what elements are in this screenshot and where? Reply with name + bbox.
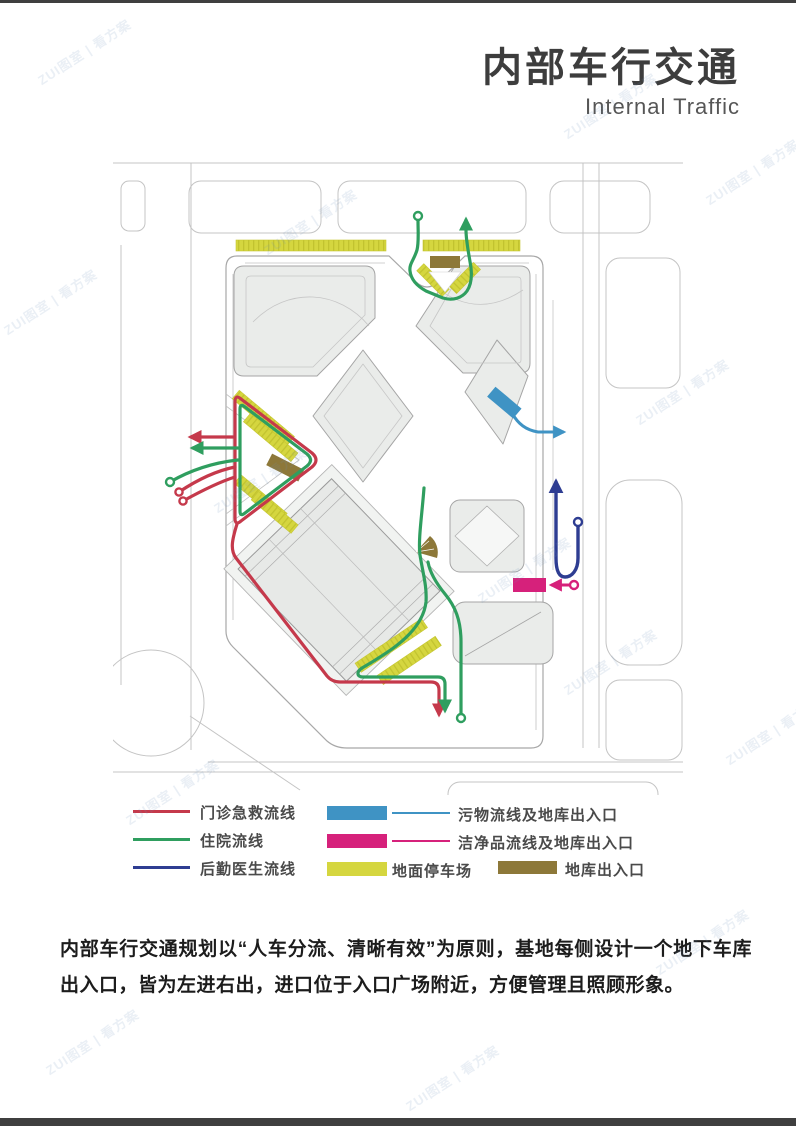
watermark: ZUI图室 | 看方案 <box>0 264 100 339</box>
flow-logistics-navy <box>556 482 578 577</box>
legend-label-inpatient: 住院流线 <box>200 830 264 851</box>
legend-label-waste: 污物流线及地库出入口 <box>458 804 618 825</box>
site-plan-svg <box>113 150 683 795</box>
legend-swatch-logistics-line <box>133 866 190 869</box>
site-plan-map <box>113 150 683 795</box>
clean-flow-start-node <box>570 581 578 589</box>
top-edge-bar <box>0 0 796 3</box>
flow-clean-magenta <box>513 578 578 592</box>
legend-swatch-parking-rect <box>327 862 387 876</box>
watermark: ZUI图室 | 看方案 <box>702 134 796 209</box>
legend-label-parking: 地面停车场 <box>392 860 472 881</box>
description-paragraph: 内部车行交通规划以“人车分流、清晰有效”为原则，基地每侧设计一个地下车库出入口，… <box>60 932 752 1004</box>
watermark: ZUI图室 | 看方案 <box>402 1040 503 1115</box>
legend-label-logistics: 后勤医生流线 <box>200 858 296 879</box>
legend-swatch-clean-line <box>392 840 450 842</box>
clean-garage-ramp <box>513 578 546 592</box>
legend-label-clean: 洁净品流线及地库出入口 <box>458 832 634 853</box>
legend-swatch-waste-line <box>392 812 450 814</box>
page-title-block: 内部车行交通 Internal Traffic <box>482 44 740 120</box>
legend-swatch-garage-rect <box>498 861 557 874</box>
page-title: 内部车行交通 <box>482 44 740 92</box>
legend-label-garage: 地库出入口 <box>565 859 645 880</box>
legend-swatch-inpatient-line <box>133 838 190 841</box>
page-subtitle: Internal Traffic <box>482 94 740 120</box>
legend-swatch-waste-rect <box>327 806 387 820</box>
bottom-edge-bar <box>0 1118 796 1126</box>
watermark: ZUI图室 | 看方案 <box>34 14 135 89</box>
legend-swatch-outpatient-line <box>133 810 190 813</box>
legend-label-outpatient: 门诊急救流线 <box>200 802 296 823</box>
watermark: ZUI图室 | 看方案 <box>42 1004 143 1079</box>
legend-swatch-clean-rect <box>327 834 387 848</box>
watermark: ZUI图室 | 看方案 <box>722 694 796 769</box>
